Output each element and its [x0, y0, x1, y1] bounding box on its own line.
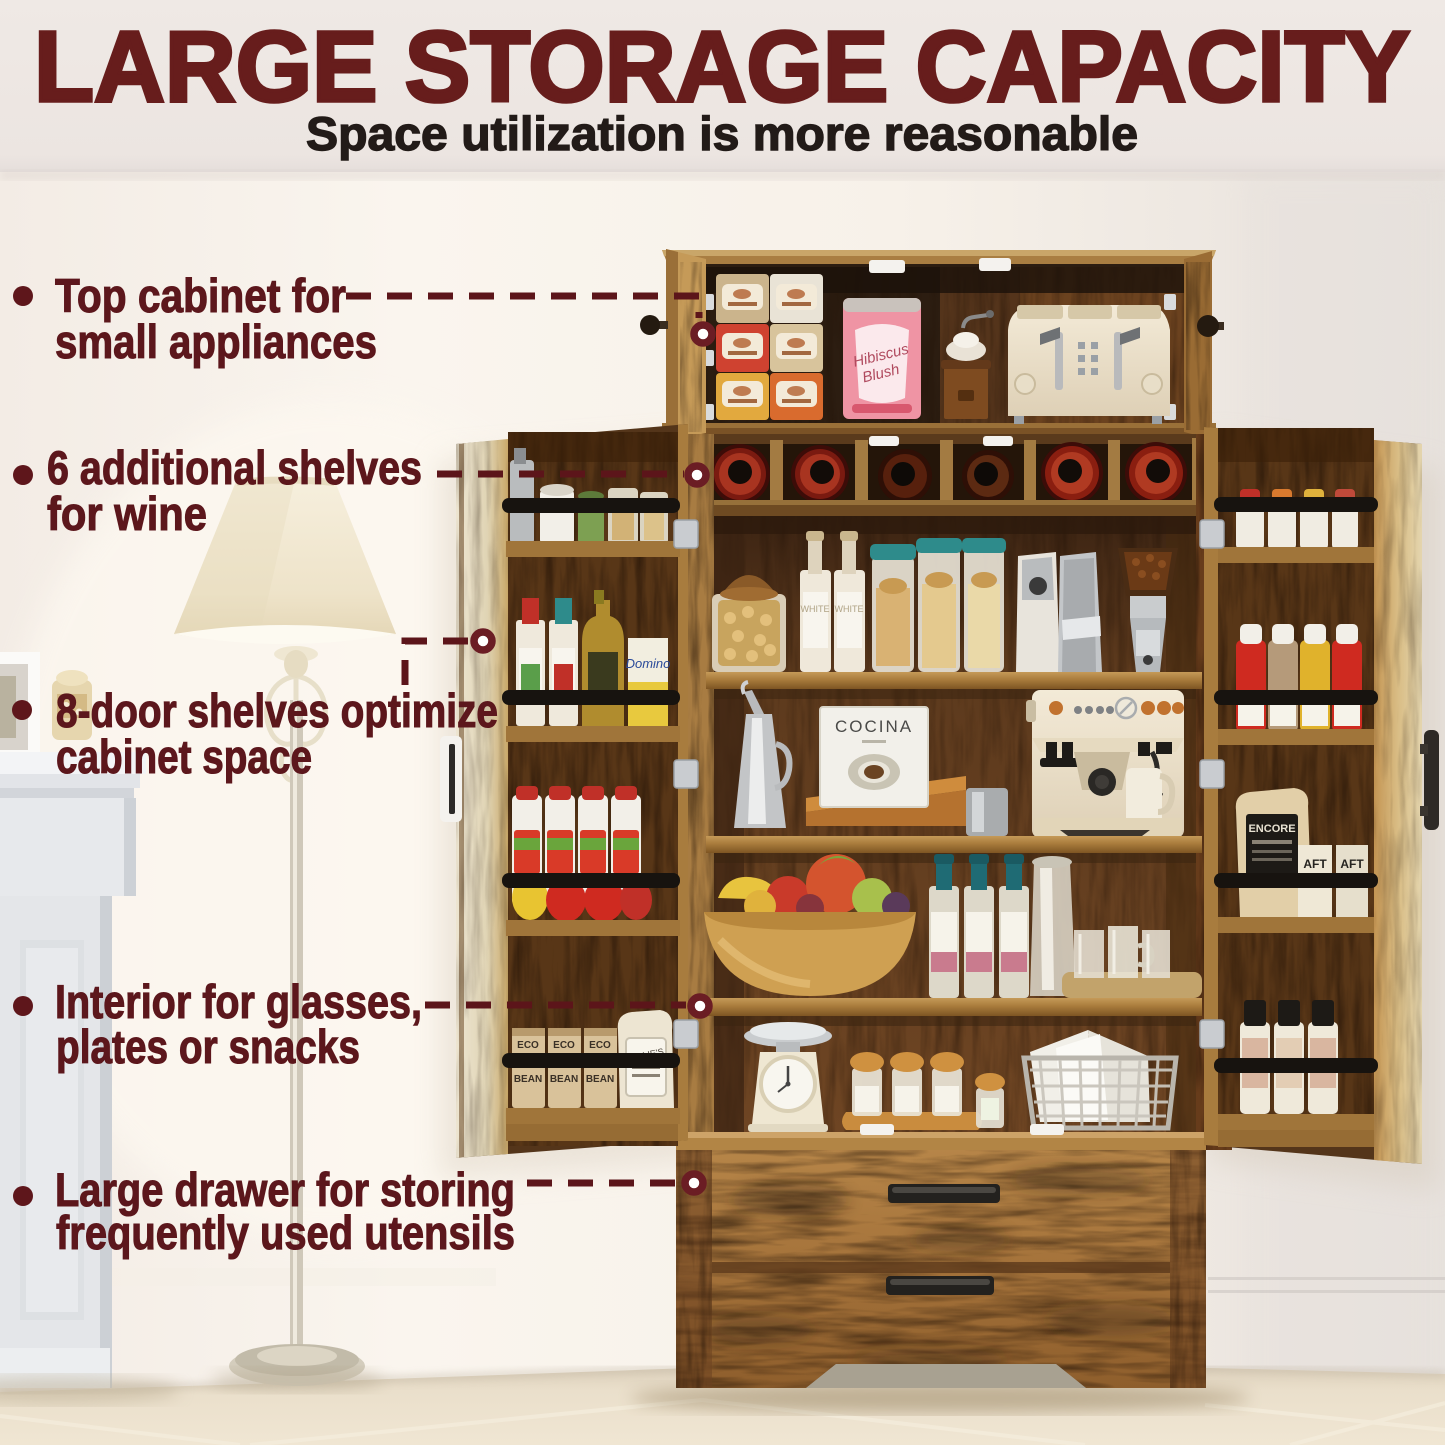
svg-text:BEAN: BEAN — [586, 1074, 614, 1085]
svg-text:AFT: AFT — [1340, 857, 1364, 871]
svg-text:ECO: ECO — [517, 1040, 539, 1051]
svg-text:small appliances: small appliances — [55, 315, 377, 368]
svg-text:BEAN: BEAN — [550, 1074, 578, 1085]
svg-text:Domino: Domino — [626, 656, 671, 671]
svg-text:BEAN: BEAN — [514, 1074, 542, 1085]
svg-text:Space utilization is more reas: Space utilization is more reasonable — [306, 107, 1138, 160]
svg-text:for wine: for wine — [47, 487, 207, 540]
svg-text:frequently used utensils: frequently used utensils — [56, 1206, 515, 1259]
svg-text:AFT: AFT — [1303, 857, 1327, 871]
svg-text:cabinet space: cabinet space — [56, 730, 312, 783]
svg-text:ECO: ECO — [589, 1040, 611, 1051]
svg-text:ECO: ECO — [553, 1040, 575, 1051]
svg-text:WHITE: WHITE — [801, 604, 830, 614]
svg-text:WHITE: WHITE — [835, 604, 864, 614]
svg-text:COCINA: COCINA — [835, 717, 913, 736]
svg-text:plates or snacks: plates or snacks — [56, 1020, 360, 1073]
svg-text:ENCORE: ENCORE — [1248, 823, 1295, 835]
